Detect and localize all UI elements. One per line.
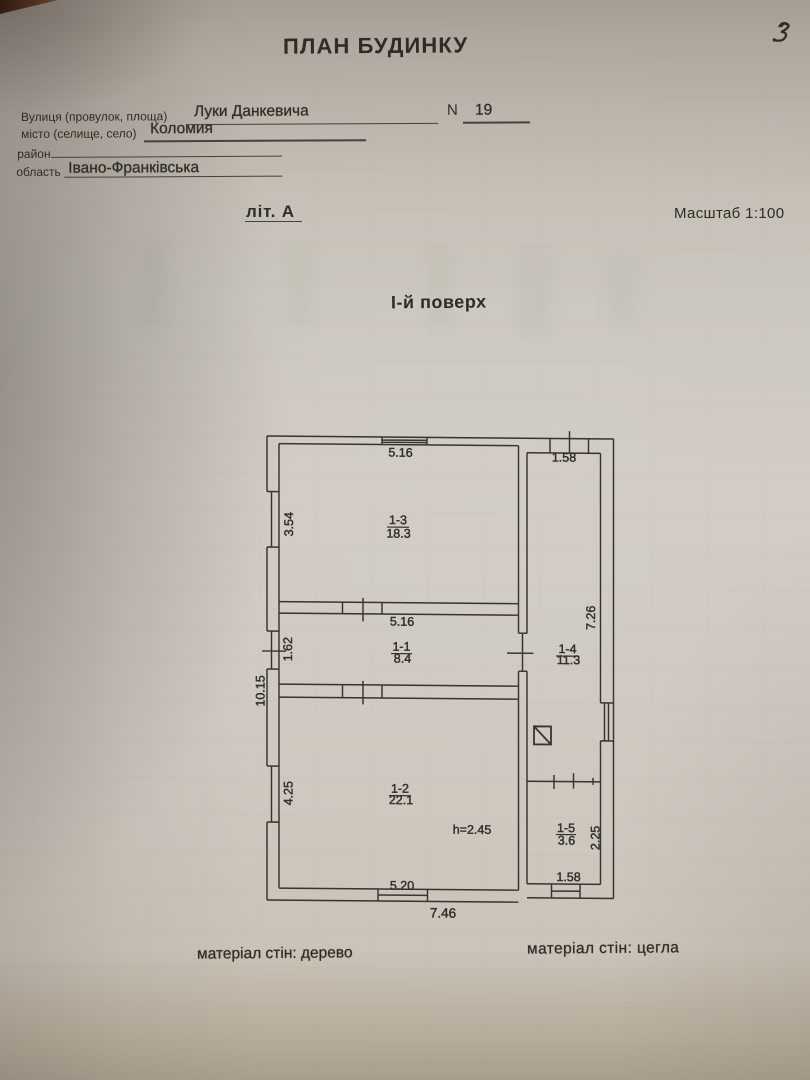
svg-text:11.3: 11.3 (557, 653, 580, 667)
svg-text:1.62: 1.62 (281, 637, 295, 661)
svg-text:3.54: 3.54 (282, 512, 296, 536)
svg-text:8.4: 8.4 (394, 652, 411, 666)
svg-text:1.58: 1.58 (556, 870, 580, 884)
svg-text:1-3: 1-3 (389, 513, 407, 527)
svg-text:7.46: 7.46 (430, 905, 456, 920)
svg-text:5.20: 5.20 (390, 879, 414, 893)
svg-text:18.3: 18.3 (386, 527, 410, 541)
svg-text:3.6: 3.6 (558, 834, 575, 848)
svg-text:7.26: 7.26 (584, 606, 598, 630)
svg-text:5.16: 5.16 (390, 615, 414, 629)
svg-text:10.15: 10.15 (254, 675, 268, 706)
svg-text:h=2.45: h=2.45 (453, 823, 492, 837)
svg-text:1.58: 1.58 (552, 450, 576, 464)
svg-text:4.25: 4.25 (282, 781, 296, 805)
svg-text:5.16: 5.16 (388, 446, 412, 460)
svg-text:22.1: 22.1 (389, 793, 413, 807)
svg-text:2.25: 2.25 (589, 826, 603, 850)
